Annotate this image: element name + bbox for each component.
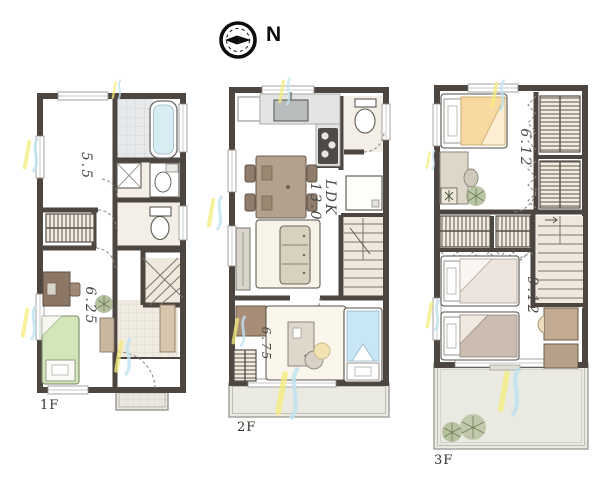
compass-icon (221, 23, 255, 57)
room-size-label-2f-bedroom: 6.75 (259, 327, 273, 362)
floorplan-svg: N (0, 0, 600, 479)
toilet-1f (150, 207, 171, 240)
floorplan-image: N (0, 0, 600, 479)
washbasin (150, 163, 179, 197)
floor-plan-1f: 5.5 6.25 (36, 92, 187, 410)
floor-label-2f: 2F (237, 420, 256, 435)
dresser-3f (538, 308, 578, 340)
floor-plan-2f: LDK 13.0 6.75 (228, 86, 390, 417)
desk-1f (43, 272, 80, 306)
balcony-2f (229, 383, 389, 417)
closet-1f (46, 214, 94, 242)
room-size-label-1f-main: 5.5 (78, 152, 94, 180)
bathtub (150, 101, 177, 158)
shoe-cabinet (160, 305, 175, 352)
compass-north-label: N (266, 23, 281, 46)
toilet-2f (355, 99, 376, 133)
stove (318, 128, 338, 164)
sofa (280, 226, 310, 284)
bed-3f-right (441, 312, 519, 360)
closet-2f (234, 350, 256, 381)
refrigerator (238, 97, 260, 121)
door-arc-3f-top (512, 188, 536, 212)
floor-label-1f: 1F (40, 398, 59, 413)
plant-box-3f (441, 188, 457, 204)
bathroom-floor (115, 99, 153, 160)
washing-machine (117, 163, 141, 188)
dresser-1f (100, 318, 114, 352)
bed-3f-top (441, 94, 507, 148)
bed-1f (42, 316, 79, 384)
bed-3f-left (441, 256, 519, 306)
floor-label-3f: 3F (434, 453, 453, 468)
floor-cushion-2 (314, 343, 330, 359)
room-size-label-2f-ldk: 13.0 (307, 182, 323, 221)
dining-table (256, 156, 306, 218)
floor-plan-3f: 6.12 9.12 (433, 84, 588, 449)
room-label-2f-ldk: LDK (322, 179, 338, 217)
bed-2f (344, 308, 382, 382)
room-size-label-3f-top: 6.12 (517, 128, 533, 167)
closets-3f-middle (440, 216, 530, 260)
room-size-label-3f-bottom: 9.12 (524, 276, 540, 315)
cabinet-3f (544, 344, 578, 368)
room-size-label-1f-bedroom: 6.25 (82, 286, 98, 325)
